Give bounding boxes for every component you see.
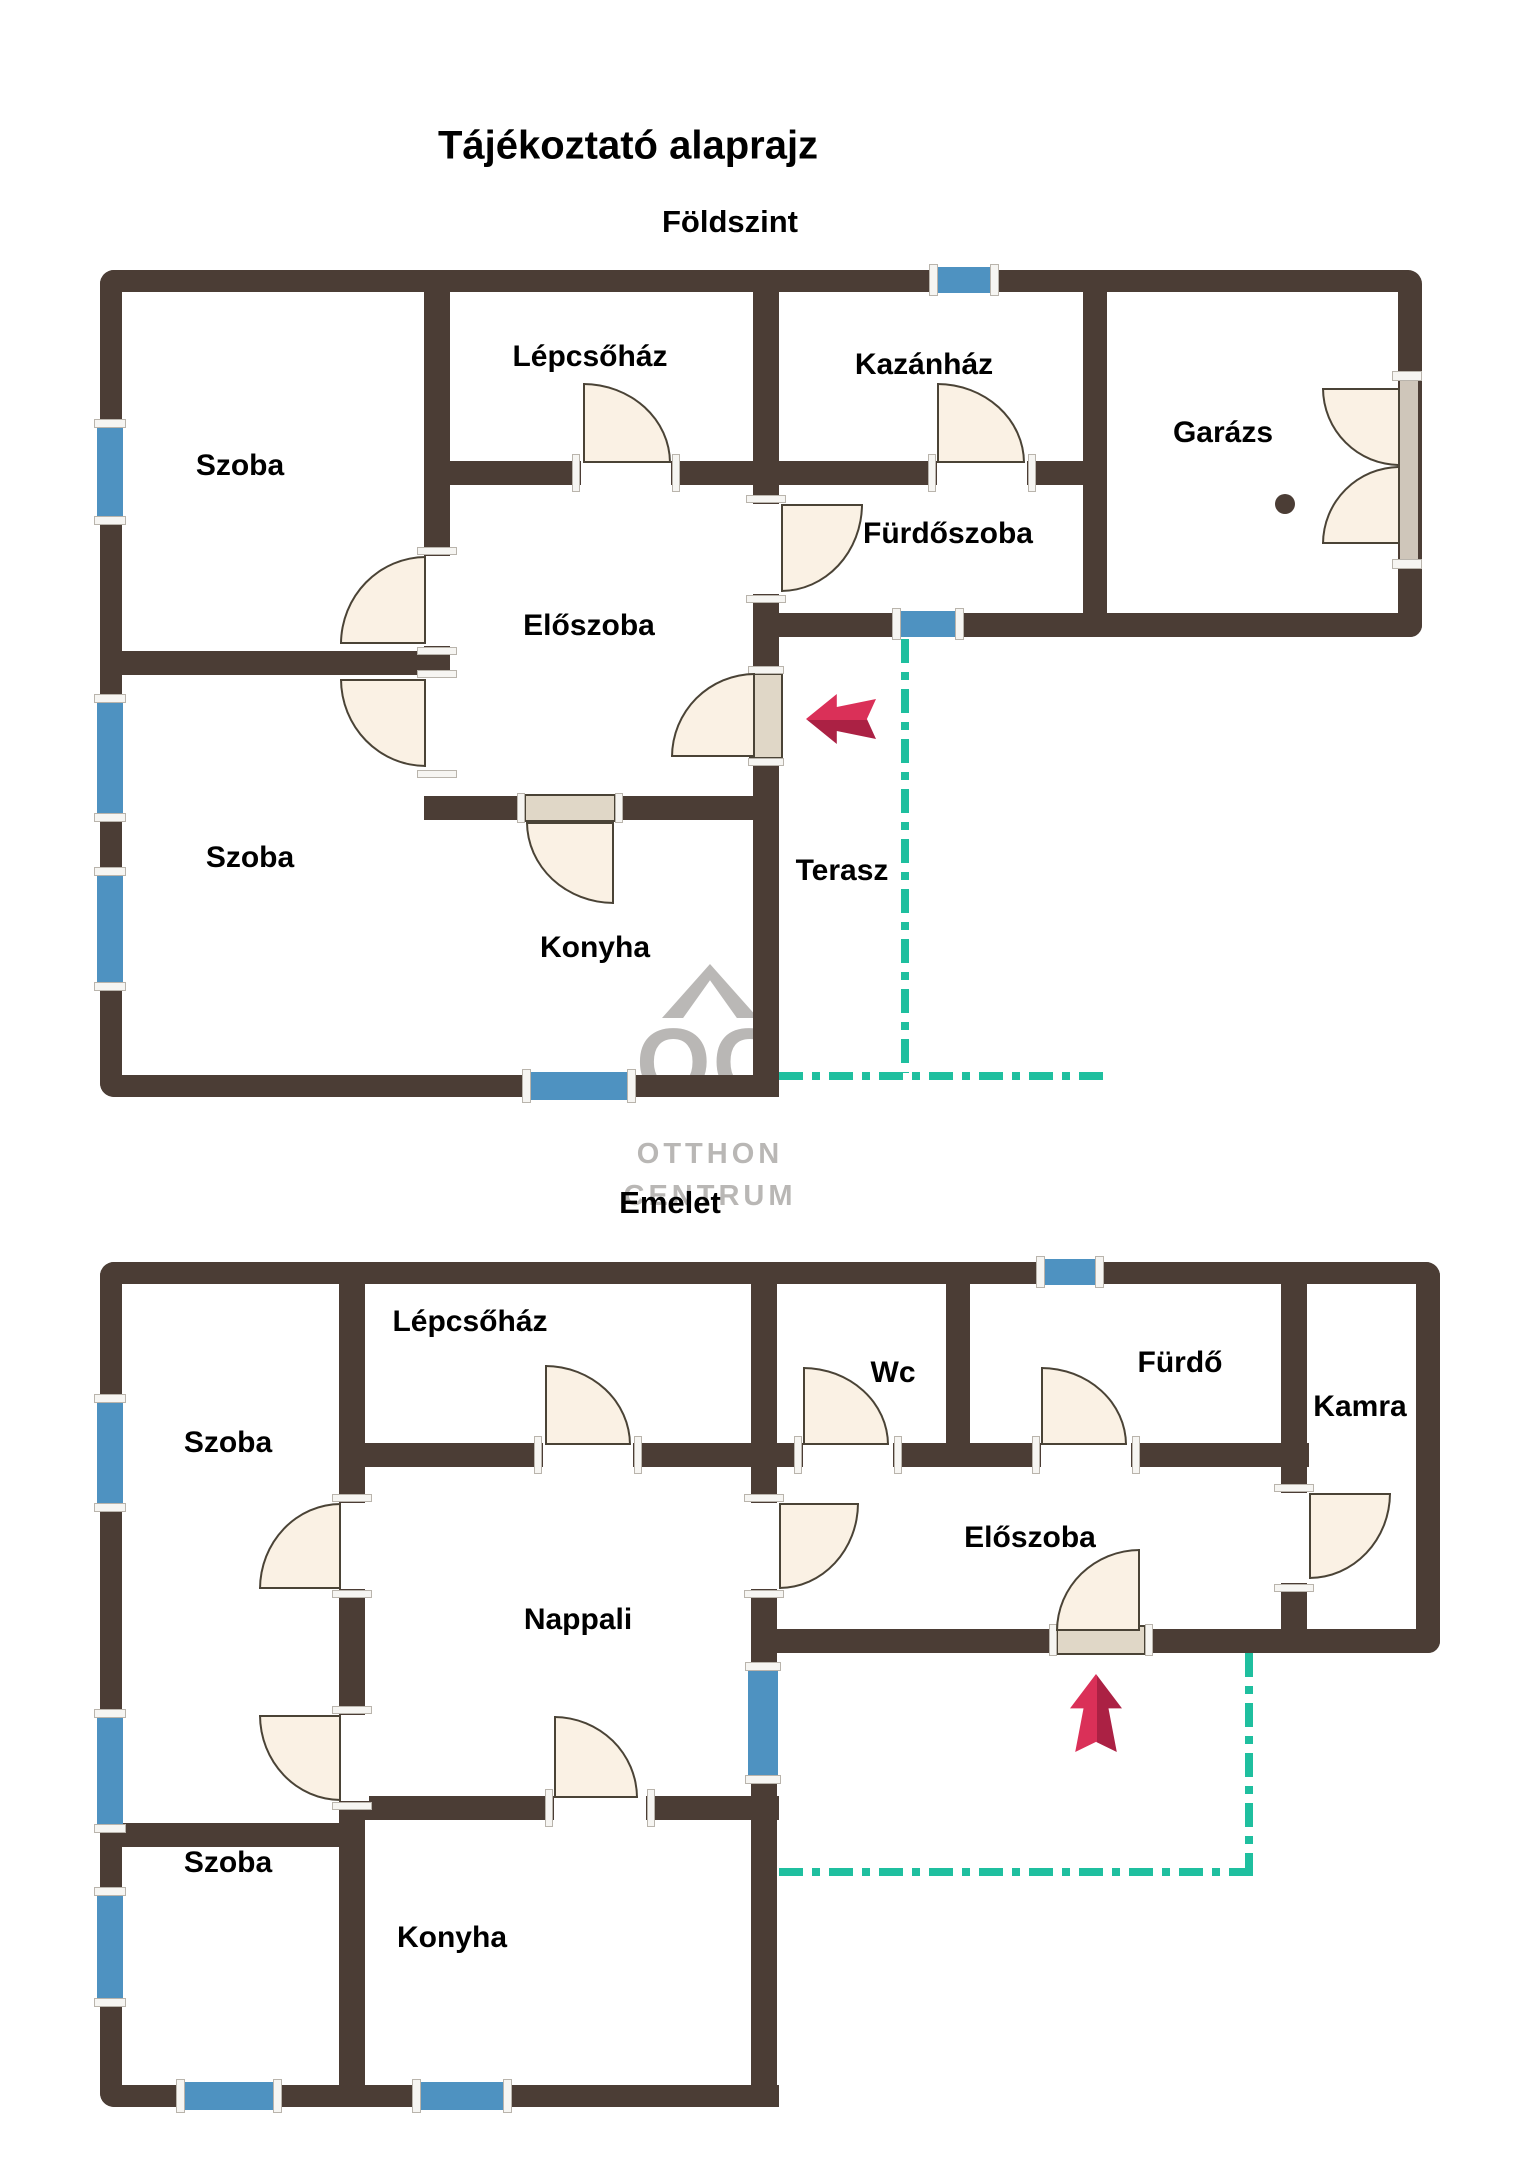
gf-terrace-line-horizontal bbox=[779, 1072, 1111, 1080]
up-room-label-kamra: Kamra bbox=[1313, 1390, 1406, 1424]
up-door-entrance bbox=[1056, 1549, 1140, 1631]
up-door-szoba1 bbox=[259, 1503, 341, 1589]
up-door-furdo bbox=[1041, 1367, 1127, 1445]
up-window-bottom-2 bbox=[421, 2082, 503, 2110]
ground-floor-label: Földszint bbox=[662, 204, 798, 240]
gf-window-top bbox=[938, 267, 990, 293]
floor-plan-canvas: Tájékoztató alaprajz Földszint Emelet OC… bbox=[0, 0, 1520, 2180]
gf-opening-kitchen bbox=[524, 794, 616, 822]
gf-door-bathroom bbox=[781, 504, 863, 592]
up-wall-wc-divider bbox=[946, 1282, 970, 1443]
gf-room-label-lepcsohaz: Lépcsőház bbox=[512, 340, 667, 374]
gf-door-boiler bbox=[937, 383, 1025, 463]
up-opening-eloszoba-left bbox=[747, 1503, 781, 1589]
up-window-right-side bbox=[748, 1671, 778, 1775]
gf-room-label-szoba-1: Szoba bbox=[196, 449, 284, 483]
gf-window-left-3 bbox=[97, 876, 123, 982]
gf-garage-door-upper bbox=[1322, 388, 1400, 466]
gf-garage-door-lower bbox=[1322, 466, 1400, 544]
gf-door-stairs bbox=[583, 383, 671, 463]
up-wall-szoba-divider-vertical bbox=[339, 1282, 365, 2085]
gf-garage-door-cap-bottom bbox=[1392, 559, 1422, 569]
gf-wall-garage-divider bbox=[1083, 290, 1107, 637]
gf-entrance-arrow-icon bbox=[806, 694, 876, 744]
gf-wall-szoba-divider-horizontal bbox=[100, 651, 450, 675]
gf-window-bottom bbox=[531, 1072, 627, 1100]
up-door-nappali bbox=[554, 1716, 638, 1798]
gf-garage-door-cap-top bbox=[1392, 371, 1422, 381]
up-opening-kamra bbox=[1277, 1493, 1311, 1583]
up-door-kamra bbox=[1309, 1493, 1391, 1579]
up-terrace-line-vertical bbox=[1245, 1653, 1253, 1875]
up-terrace-line-horizontal bbox=[779, 1868, 1257, 1876]
gf-room-label-garazs: Garázs bbox=[1173, 416, 1273, 450]
up-window-left-3 bbox=[97, 1896, 123, 1998]
logo-monogram: OC bbox=[610, 1008, 810, 1118]
up-window-bottom-1 bbox=[185, 2082, 273, 2110]
logo-otthon-text: OTTHON bbox=[590, 1138, 830, 1171]
gf-door-entrance bbox=[671, 673, 755, 757]
up-wall-kamra-divider bbox=[1281, 1282, 1307, 1653]
gf-room-label-konyha: Konyha bbox=[540, 931, 650, 965]
gf-window-left-1 bbox=[97, 428, 123, 516]
gf-door-kitchen bbox=[526, 822, 614, 904]
up-room-label-nappali: Nappali bbox=[524, 1603, 632, 1637]
gf-wall-bottom bbox=[100, 1075, 779, 1097]
gf-room-label-kazanhaz: Kazánház bbox=[855, 348, 993, 382]
up-door-eloszoba-left bbox=[779, 1503, 859, 1589]
up-room-label-lepcsohaz: Lépcsőház bbox=[392, 1305, 547, 1339]
gf-wall-terrace-top bbox=[753, 613, 1422, 637]
gf-terrace-line-vertical bbox=[901, 639, 909, 1073]
up-entrance-arrow-icon bbox=[1070, 1674, 1122, 1752]
gf-room-label-eloszoba: Előszoba bbox=[523, 609, 655, 643]
up-room-label-konyha: Konyha bbox=[397, 1921, 507, 1955]
gf-window-left-2 bbox=[97, 703, 123, 813]
gf-door-room1 bbox=[340, 556, 426, 644]
up-room-label-furdo: Fürdő bbox=[1138, 1346, 1223, 1380]
up-window-left-2 bbox=[97, 1718, 123, 1824]
up-door-szoba2 bbox=[259, 1715, 341, 1801]
gf-room-label-szoba-2: Szoba bbox=[206, 841, 294, 875]
up-wall-right bbox=[1416, 1262, 1440, 1653]
gf-opening-bathroom bbox=[749, 504, 783, 594]
up-door-stairs bbox=[545, 1365, 631, 1445]
gf-window-terrace-wall bbox=[901, 611, 955, 637]
gf-garage-door-recess bbox=[1400, 380, 1418, 560]
upper-floor-label: Emelet bbox=[619, 1185, 721, 1221]
up-room-label-szoba-1: Szoba bbox=[184, 1426, 272, 1460]
gf-garage-dot bbox=[1275, 494, 1295, 514]
up-window-top bbox=[1045, 1259, 1095, 1285]
gf-room-label-furdoszoba: Fürdőszoba bbox=[863, 517, 1033, 551]
gf-door-room2 bbox=[340, 679, 426, 767]
page-title: Tájékoztató alaprajz bbox=[438, 124, 818, 169]
up-room-label-eloszoba: Előszoba bbox=[964, 1521, 1096, 1555]
up-wall-szoba-divider-horizontal bbox=[100, 1823, 365, 1847]
up-window-left-1 bbox=[97, 1403, 123, 1503]
gf-room-label-terasz: Terasz bbox=[796, 854, 889, 888]
up-room-label-wc: Wc bbox=[871, 1356, 916, 1390]
up-room-label-szoba-2: Szoba bbox=[184, 1846, 272, 1880]
